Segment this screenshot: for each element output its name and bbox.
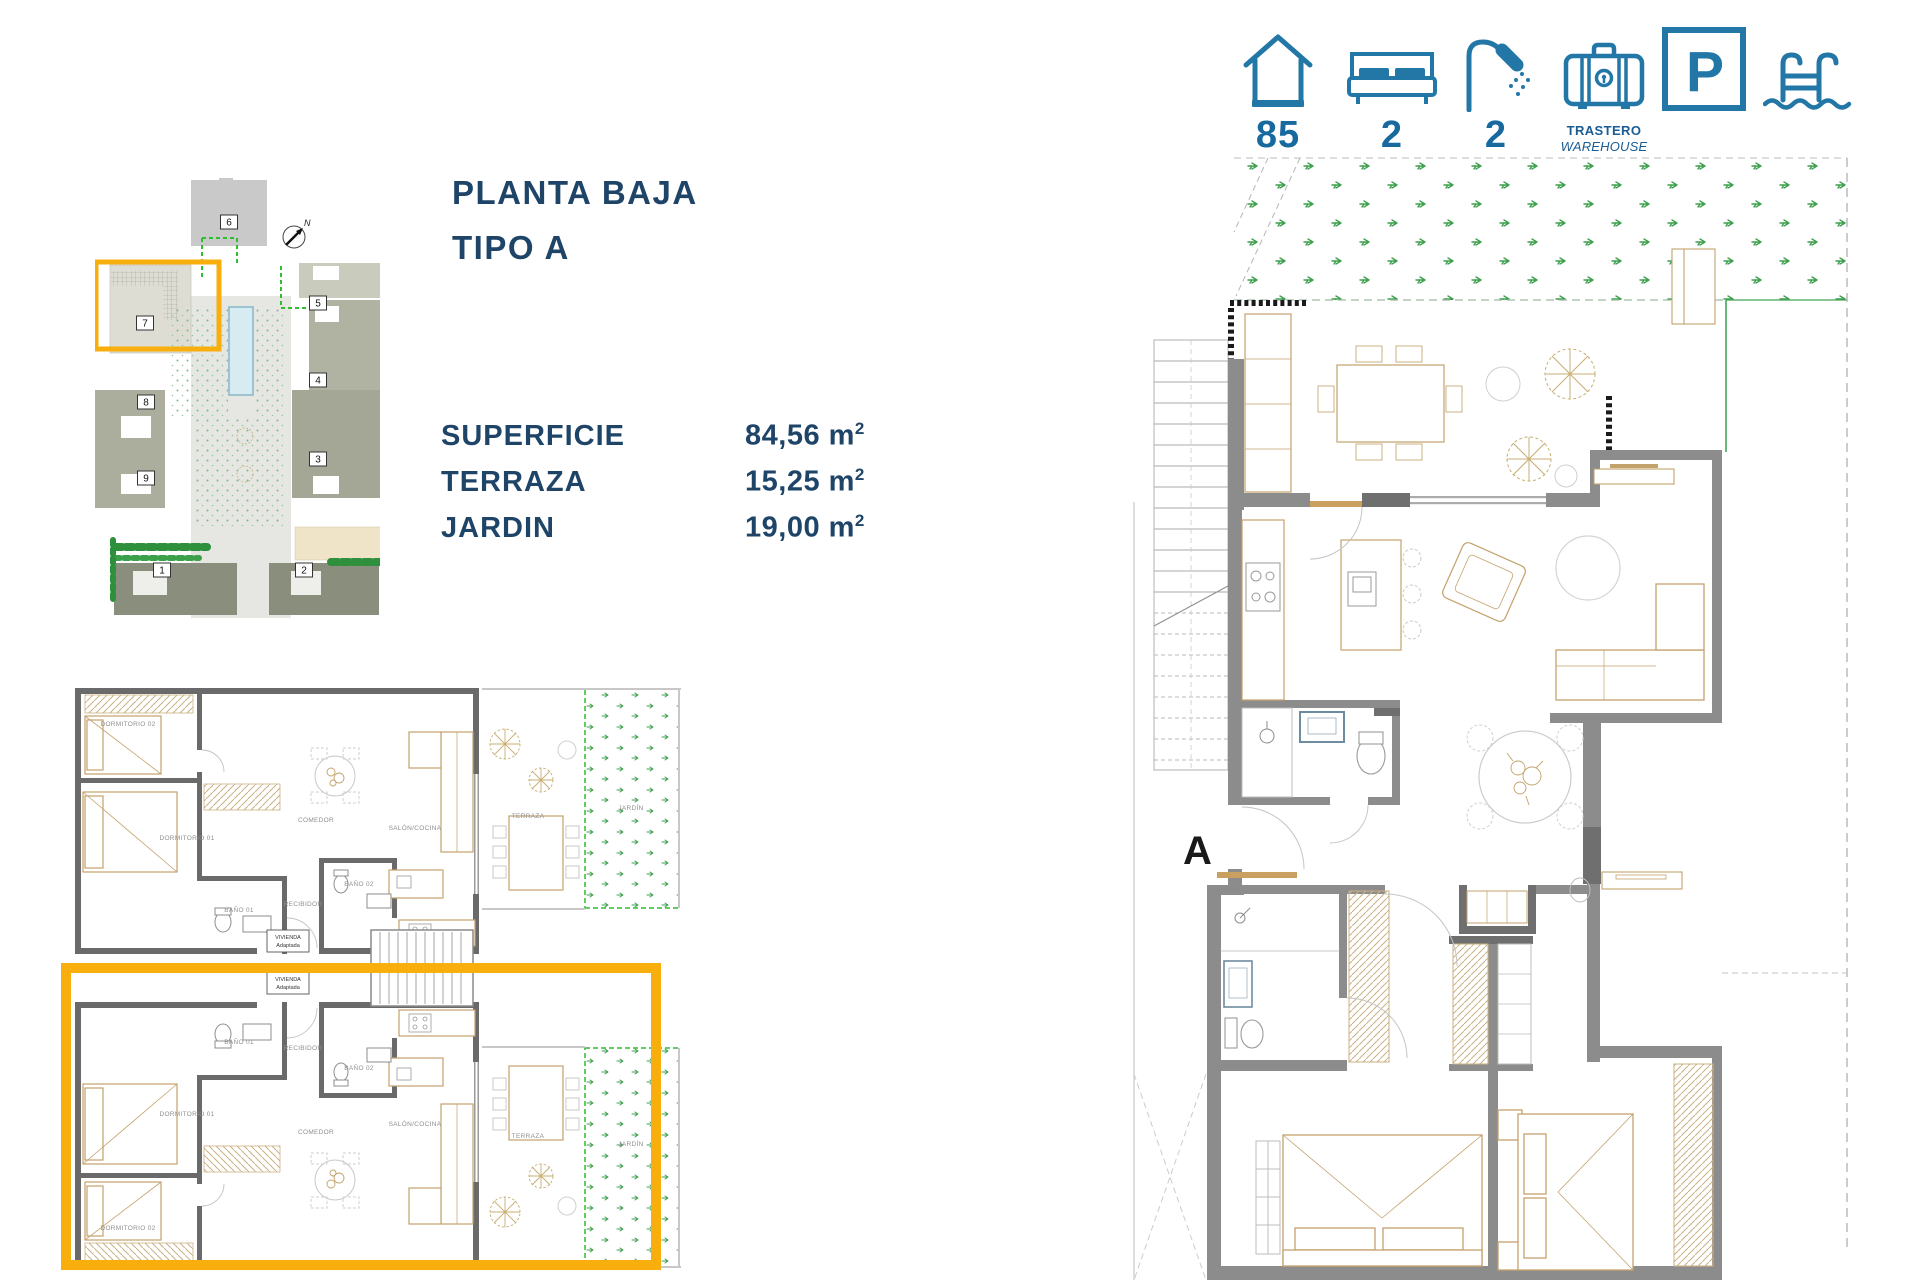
amenity-parking: P [1658,28,1750,112]
building-number-6: 6 [226,218,232,229]
building-number-7: 7 [142,319,148,330]
svg-text:Adaptada: Adaptada [276,943,300,949]
building-number-1: 1 [159,566,165,577]
warehouse-label-en: WAREHOUSE [1561,139,1648,155]
building-number-2: 2 [301,566,307,577]
surface-label: SUPERFICIE [441,420,745,453]
room-label: DORMITORIO 02 [100,721,155,728]
surface-value: 84,56 m2 [745,419,865,453]
garden-area [1234,158,1847,452]
surface-row: SUPERFICIE 84,56 m2 [441,413,865,459]
site-plan: 6 7 5 4 8 9 3 1 2 N [95,178,380,618]
amenity-bedrooms: 2 [1344,28,1440,154]
bathrooms-count: 2 [1485,116,1507,154]
room-label: RECIBIDOR [284,901,323,908]
building-number-8: 8 [143,398,149,409]
pool-ladder-icon [1763,28,1853,112]
building-number-3: 3 [315,455,321,466]
unit-type-title: TIPO A [452,231,698,264]
building-number-5: 5 [315,299,321,310]
terrace-furniture [1318,346,1595,481]
room-label: COMEDOR [298,817,334,824]
terrace-value: 15,25 m2 [745,465,865,499]
site-pool [229,307,253,395]
unit-letter: A [1183,829,1212,873]
ensuite-fixtures [1221,908,1339,1048]
amenity-bathrooms: 2 [1456,28,1536,154]
bed-icon [1346,28,1438,112]
stairs [1154,340,1228,770]
vivienda-adaptada-box-upper: VIVIENDA Adaptada [267,930,309,952]
room-label: DORMITORIO 01 [159,835,214,842]
amenity-house: 85 [1242,28,1314,154]
amenity-warehouse: TRASTERO WAREHOUSE [1552,28,1656,156]
amenity-bar: 85 2 [0,0,1920,160]
house-area-value: 85 [1256,116,1300,154]
surface-table: SUPERFICIE 84,56 m2 TERRAZA 15,25 m2 JAR… [441,413,865,551]
garden-label: JARDIN [441,512,745,545]
unit-geometry [75,688,681,954]
room-label: SALÓN/COCINA [389,823,442,832]
parking-cross-marks [1134,1074,1206,1280]
terrace-label: TERRAZA [441,466,745,499]
garden-value: 19,00 m2 [745,511,865,545]
large-unit-plan: A [1128,156,1868,1280]
compass-north-label: N [304,218,311,228]
surface-row: TERRAZA 15,25 m2 [441,459,865,505]
bed-second [1498,1110,1633,1270]
main-bath-fixtures [1242,708,1385,797]
parking-letter: P [1686,40,1724,104]
building-number-9: 9 [143,474,149,485]
bedroom-window-bench [1256,1141,1280,1254]
floorplan-page: 85 2 [0,0,1920,1280]
warehouse-icon [1562,28,1646,112]
parking-icon: P [1661,28,1747,112]
surface-row: JARDIN 19,00 m2 [441,505,865,551]
title-block: PLANTA BAJA TIPO A [452,176,698,264]
room-label: BAÑO 02 [344,879,374,888]
house-icon [1243,28,1313,112]
room-label: TERRAZA [512,813,545,820]
warehouse-label-es: TRASTERO [1567,123,1642,139]
building-number-4: 4 [315,376,321,387]
outdoor-sofa [1672,249,1715,324]
page-title: PLANTA BAJA [452,176,698,209]
shower-icon [1459,28,1533,112]
armchair [1441,541,1528,623]
bedrooms-count: 2 [1381,116,1403,154]
amenity-pool [1760,28,1856,112]
bed-master [1283,1135,1482,1266]
unit-highlight-box [61,963,661,1270]
dining-table [1467,725,1583,829]
room-label: JARDÍN [618,803,643,812]
compass-icon: N [283,218,311,248]
svg-text:VIVIENDA: VIVIENDA [275,935,301,941]
room-label: BAÑO 01 [224,905,254,914]
